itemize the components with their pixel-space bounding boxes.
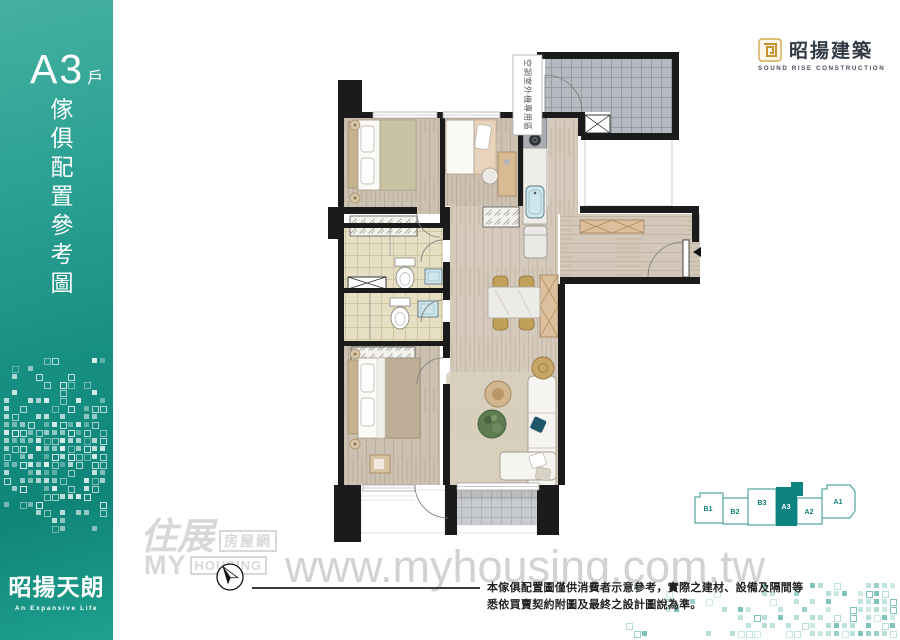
myhousing-logo-watermark: 住展 房屋網 MY HOUSING bbox=[140, 519, 277, 579]
mosaic-square bbox=[92, 462, 99, 469]
mosaic-square bbox=[44, 510, 51, 517]
mosaic-square bbox=[100, 438, 107, 445]
mosaic-square bbox=[28, 454, 33, 459]
mosaic-square bbox=[20, 406, 27, 413]
mosaic-square bbox=[52, 470, 57, 475]
mosaic-square bbox=[882, 623, 889, 630]
mosaic-square bbox=[100, 430, 107, 437]
mosaic-square bbox=[44, 470, 49, 475]
mosaic-square bbox=[810, 631, 815, 636]
unit-code: A3 bbox=[30, 46, 84, 92]
keyplan-unit-b3 bbox=[748, 489, 776, 525]
mosaic-square bbox=[890, 631, 897, 638]
mosaic-square bbox=[68, 454, 75, 461]
mosaic-square bbox=[100, 454, 107, 461]
mosaic-square bbox=[60, 414, 65, 419]
mosaic-square bbox=[100, 398, 105, 403]
mosaic-square bbox=[68, 382, 75, 389]
mosaic-square bbox=[36, 502, 43, 509]
mosaic-square bbox=[60, 382, 67, 389]
mosaic-square bbox=[84, 406, 89, 411]
mosaic-square bbox=[60, 446, 65, 451]
mosaic-square bbox=[76, 454, 83, 461]
keyplan-label-a1: A1 bbox=[834, 499, 843, 506]
mosaic-square bbox=[52, 406, 59, 413]
mosaic-square bbox=[52, 462, 59, 469]
mosaic-square bbox=[44, 398, 49, 403]
mosaic-square bbox=[28, 366, 33, 371]
mosaic-square bbox=[76, 438, 81, 443]
disclaimer-line1: 本傢俱配置圖僅供消費者示意參考，實際之建材、設備及隔間等 bbox=[487, 580, 900, 597]
mosaic-square bbox=[36, 438, 41, 443]
mosaic-square bbox=[4, 422, 9, 427]
mosaic-square bbox=[68, 494, 73, 499]
mosaic-square bbox=[60, 390, 67, 397]
mosaic-square bbox=[866, 615, 871, 620]
mosaic-square bbox=[874, 615, 881, 622]
mosaic-square bbox=[4, 438, 9, 443]
mosaic-square bbox=[12, 430, 19, 437]
mosaic-square bbox=[100, 502, 107, 509]
mosaic-square bbox=[762, 623, 767, 628]
mosaic-square bbox=[68, 462, 73, 467]
mosaic-square bbox=[92, 478, 99, 485]
mosaic-square bbox=[60, 462, 65, 467]
mosaic-square bbox=[20, 438, 25, 443]
mosaic-square bbox=[92, 390, 97, 395]
mosaic-square bbox=[68, 406, 75, 413]
mosaic-square bbox=[92, 358, 97, 363]
builder-subtitle: SOUND RISE CONSTRUCTION bbox=[758, 65, 888, 72]
mosaic-square bbox=[12, 366, 19, 373]
wm-my: MY bbox=[144, 552, 187, 579]
living-room bbox=[446, 357, 556, 488]
mosaic-square bbox=[850, 615, 857, 622]
mosaic-square bbox=[20, 486, 27, 493]
mosaic-square bbox=[850, 631, 855, 636]
mosaic-square bbox=[20, 454, 25, 459]
mosaic-square bbox=[84, 510, 89, 515]
mosaic-square bbox=[84, 438, 91, 445]
mosaic-square bbox=[834, 615, 841, 622]
keyplan-label-b3: B3 bbox=[758, 500, 767, 507]
mosaic-square bbox=[92, 454, 97, 459]
mosaic-square bbox=[12, 462, 17, 467]
mosaic-square bbox=[68, 470, 75, 477]
mosaic-square bbox=[36, 462, 41, 467]
mosaic-square bbox=[826, 623, 831, 628]
mosaic-square bbox=[84, 454, 91, 461]
mosaic-square bbox=[4, 398, 9, 403]
mosaic-square bbox=[866, 623, 871, 628]
mosaic-square bbox=[44, 430, 49, 435]
mosaic-square bbox=[36, 510, 41, 515]
mosaic-square bbox=[794, 631, 801, 638]
mosaic-square bbox=[738, 615, 743, 620]
mosaic-square bbox=[834, 623, 839, 628]
mosaic-square bbox=[76, 398, 81, 403]
mosaic-square bbox=[44, 422, 49, 427]
mosaic-square bbox=[882, 615, 887, 620]
mosaic-square bbox=[44, 462, 49, 467]
builder-name: 昭揚建築 bbox=[789, 36, 873, 63]
mosaic-square bbox=[28, 502, 33, 507]
mosaic-square bbox=[786, 631, 793, 638]
mosaic-square bbox=[4, 470, 9, 475]
mosaic-square bbox=[874, 631, 879, 636]
mosaic-square bbox=[4, 478, 11, 485]
mosaic-square bbox=[28, 478, 33, 483]
mosaic-square bbox=[68, 486, 75, 493]
mosaic-square bbox=[12, 374, 17, 379]
mosaic-square bbox=[754, 615, 761, 622]
mosaic-square bbox=[76, 510, 81, 515]
mosaic-square bbox=[866, 631, 871, 636]
mosaic-square bbox=[68, 374, 75, 381]
mosaic-square bbox=[706, 631, 711, 636]
mosaic-square bbox=[20, 446, 27, 453]
mosaic-square bbox=[52, 438, 59, 445]
mosaic-square bbox=[84, 478, 89, 483]
mosaic-square bbox=[20, 478, 25, 483]
mosaic-square bbox=[60, 510, 65, 515]
mosaic-square bbox=[52, 518, 57, 523]
mosaic-square bbox=[52, 526, 59, 533]
mosaic-square bbox=[786, 623, 791, 628]
mosaic-square bbox=[12, 422, 17, 427]
mosaic-square bbox=[746, 623, 751, 628]
kitchen bbox=[523, 118, 547, 258]
mosaic-square bbox=[4, 406, 9, 411]
mosaic-square bbox=[68, 446, 75, 453]
mosaic-square bbox=[92, 470, 97, 475]
mosaic-square bbox=[100, 470, 105, 475]
mosaic-square bbox=[28, 470, 33, 475]
sidebar: A3戶 傢俱配置參考圖 昭揚天朗 An Expansive Life bbox=[0, 0, 113, 640]
mosaic-square bbox=[92, 446, 97, 451]
floor-plan bbox=[322, 28, 702, 558]
mosaic-square bbox=[4, 502, 9, 507]
entry-door-leaf bbox=[683, 240, 689, 277]
mosaic-square bbox=[92, 526, 97, 531]
mosaic-square bbox=[44, 438, 51, 445]
mosaic-square bbox=[60, 526, 65, 531]
mosaic-square bbox=[794, 615, 799, 620]
mosaic-square bbox=[36, 398, 41, 403]
mosaic-square bbox=[28, 438, 33, 443]
mosaic-square bbox=[818, 631, 823, 636]
mosaic-square bbox=[60, 454, 65, 459]
mosaic-square bbox=[778, 615, 783, 620]
mosaic-square bbox=[746, 631, 753, 638]
mosaic-square bbox=[84, 422, 89, 427]
mosaic-square bbox=[92, 486, 99, 493]
mosaic-square bbox=[36, 414, 41, 419]
keyplan-label-b1: B1 bbox=[704, 506, 713, 513]
project-logo: 昭揚天朗 An Expansive Life bbox=[0, 568, 113, 612]
mosaic-square bbox=[60, 398, 67, 405]
mosaic-square bbox=[28, 430, 33, 435]
mosaic-square bbox=[68, 422, 73, 427]
mosaic-square bbox=[36, 374, 43, 381]
mosaic-square bbox=[76, 462, 83, 469]
keyplan-label-a2: A2 bbox=[805, 509, 814, 516]
mosaic-square bbox=[68, 438, 73, 443]
mosaic-square bbox=[20, 502, 27, 509]
keyplan-label-b2: B2 bbox=[731, 509, 740, 516]
mosaic-square bbox=[28, 398, 33, 403]
mosaic-square bbox=[754, 631, 761, 638]
keyplan: B1 B2 B3 A3 A2 A1 bbox=[692, 481, 867, 533]
mosaic-square bbox=[52, 358, 59, 365]
mosaic-square bbox=[44, 446, 49, 451]
mosaic-square bbox=[890, 623, 895, 628]
mosaic-square bbox=[52, 494, 59, 501]
mosaic-square bbox=[36, 430, 43, 437]
project-name: 昭揚天朗 bbox=[0, 568, 113, 602]
mosaic-square bbox=[84, 414, 89, 419]
mosaic-square bbox=[802, 623, 809, 630]
mosaic-square bbox=[76, 422, 81, 427]
unit-title: A3戶 bbox=[30, 46, 103, 93]
mosaic-square bbox=[770, 623, 775, 628]
mosaic-square bbox=[84, 494, 91, 501]
mosaic-square bbox=[44, 478, 49, 483]
mosaic-square bbox=[44, 382, 51, 389]
mosaic-square bbox=[76, 430, 81, 435]
ac-area-label: 空調室外機專用區 bbox=[514, 57, 541, 133]
mosaic-square bbox=[834, 631, 839, 636]
mosaic-square bbox=[738, 631, 745, 638]
disclaimer: 本傢俱配置圖僅供消費者示意參考，實際之建材、設備及隔間等 悉依買賣契約附圖及最終… bbox=[487, 580, 900, 613]
project-tagline: An Expansive Life bbox=[0, 605, 113, 612]
mosaic-square bbox=[626, 623, 633, 630]
sidebar-mosaic-pattern bbox=[2, 358, 112, 543]
builder-logo: 昭揚建築 SOUND RISE CONSTRUCTION bbox=[758, 36, 888, 72]
mosaic-square bbox=[52, 430, 57, 435]
mosaic-square bbox=[52, 478, 57, 483]
mosaic-square bbox=[60, 430, 65, 435]
mosaic-square bbox=[20, 422, 25, 427]
mosaic-square bbox=[44, 486, 49, 491]
mosaic-square bbox=[842, 623, 847, 628]
mosaic-square bbox=[842, 631, 849, 638]
unit-suffix: 戶 bbox=[87, 70, 103, 87]
mosaic-square bbox=[28, 422, 35, 429]
mosaic-square bbox=[44, 494, 51, 501]
mosaic-square bbox=[12, 414, 19, 421]
mosaic-square bbox=[84, 446, 91, 453]
mosaic-square bbox=[44, 414, 49, 419]
wm-boxed: 房屋網 bbox=[219, 530, 277, 552]
mosaic-square bbox=[858, 631, 863, 636]
mosaic-square bbox=[12, 438, 17, 443]
disclaimer-line2: 悉依買賣契約附圖及最終之設計圖說為準。 bbox=[487, 597, 900, 614]
mosaic-square bbox=[818, 615, 823, 620]
mosaic-square bbox=[100, 462, 107, 469]
mosaic-square bbox=[890, 615, 895, 620]
mosaic-square bbox=[4, 430, 9, 435]
mosaic-square bbox=[642, 631, 647, 636]
mosaic-square bbox=[4, 446, 9, 451]
mosaic-square bbox=[20, 462, 27, 469]
vertical-title: 傢俱配置參考圖 bbox=[43, 97, 77, 300]
mosaic-square bbox=[52, 486, 57, 491]
mosaic-square bbox=[36, 446, 41, 451]
mosaic-square bbox=[634, 631, 641, 638]
mosaic-square bbox=[100, 358, 105, 363]
leader-line bbox=[252, 587, 480, 589]
mosaic-square bbox=[52, 454, 59, 461]
mosaic-square bbox=[28, 462, 33, 467]
mosaic-square bbox=[882, 631, 887, 636]
mosaic-square bbox=[4, 414, 9, 419]
mosaic-square bbox=[20, 430, 27, 437]
mosaic-square bbox=[810, 615, 815, 620]
north-compass-icon bbox=[213, 560, 247, 594]
mosaic-square bbox=[810, 623, 815, 628]
brochure-page: A3戶 傢俱配置參考圖 昭揚天朗 An Expansive Life 昭揚建築 … bbox=[0, 0, 900, 640]
mosaic-square bbox=[60, 518, 65, 523]
mosaic-square bbox=[52, 446, 57, 451]
mosaic-square bbox=[4, 454, 11, 461]
mosaic-square bbox=[100, 406, 107, 413]
mosaic-square bbox=[44, 454, 49, 459]
mosaic-square bbox=[84, 486, 89, 491]
mosaic-square bbox=[84, 382, 91, 389]
mosaic-square bbox=[60, 422, 67, 429]
mosaic-square bbox=[100, 446, 105, 451]
mosaic-square bbox=[12, 486, 17, 491]
mosaic-square bbox=[92, 406, 99, 413]
mosaic-square bbox=[36, 478, 41, 483]
builder-spiral-icon bbox=[758, 38, 782, 62]
mosaic-square bbox=[92, 422, 99, 429]
mosaic-square bbox=[92, 414, 97, 419]
mosaic-square bbox=[76, 494, 81, 499]
mosaic-square bbox=[84, 430, 91, 437]
mosaic-square bbox=[68, 430, 75, 437]
mosaic-square bbox=[60, 478, 67, 485]
mosaic-square bbox=[100, 510, 107, 517]
mosaic-square bbox=[100, 478, 105, 483]
mosaic-square bbox=[76, 446, 81, 451]
mosaic-square bbox=[60, 438, 65, 443]
mosaic-square bbox=[44, 358, 51, 365]
mosaic-square bbox=[36, 470, 41, 475]
mosaic-square bbox=[826, 631, 831, 636]
mosaic-square bbox=[12, 390, 17, 395]
mosaic-square bbox=[60, 494, 65, 499]
mosaic-square bbox=[730, 631, 735, 636]
mosaic-square bbox=[4, 462, 9, 467]
mosaic-square bbox=[92, 438, 97, 443]
mosaic-square bbox=[52, 422, 57, 427]
mosaic-square bbox=[12, 446, 19, 453]
keyplan-label-a3: A3 bbox=[782, 504, 791, 511]
mosaic-square bbox=[762, 615, 767, 620]
mosaic-square bbox=[850, 623, 855, 628]
